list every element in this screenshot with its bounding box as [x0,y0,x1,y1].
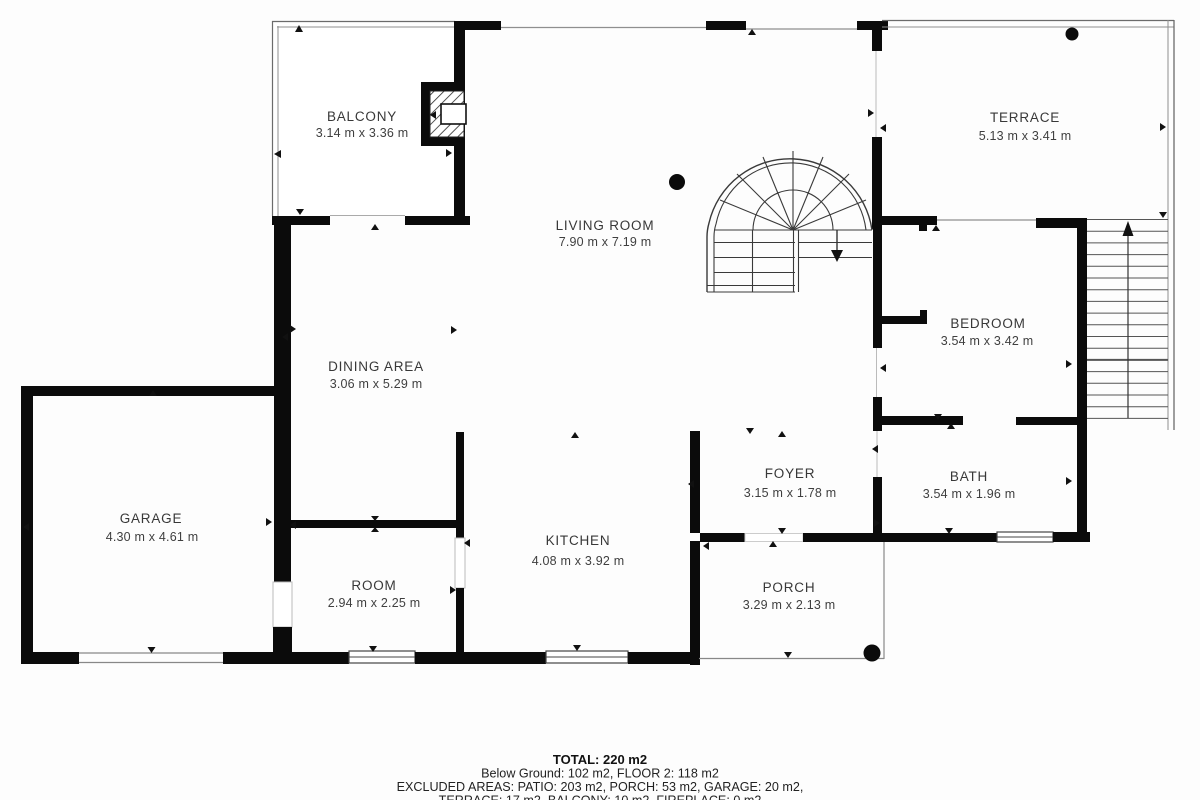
svg-text:DINING AREA: DINING AREA [328,359,424,374]
svg-text:3.06 m x 5.29 m: 3.06 m x 5.29 m [330,377,423,391]
svg-text:3.54 m x 1.96 m: 3.54 m x 1.96 m [923,487,1016,501]
svg-text:3.14 m x 3.36 m: 3.14 m x 3.36 m [316,126,409,140]
svg-text:3.29 m x 2.13 m: 3.29 m x 2.13 m [743,598,836,612]
svg-text:TOTAL: 220 m2: TOTAL: 220 m2 [553,752,647,767]
svg-text:Below Ground: 102 m2, FLOOR 2:: Below Ground: 102 m2, FLOOR 2: 118 m2 [481,767,719,781]
svg-text:3.54 m x 3.42 m: 3.54 m x 3.42 m [941,334,1034,348]
svg-text:4.30 m x 4.61 m: 4.30 m x 4.61 m [106,530,199,544]
svg-text:FOYER: FOYER [765,466,816,481]
svg-text:TERRACE: TERRACE [990,110,1060,125]
svg-text:LIVING ROOM: LIVING ROOM [556,218,655,233]
svg-text:3.15 m x 1.78 m: 3.15 m x 1.78 m [744,486,837,500]
svg-text:EXCLUDED AREAS: PATIO: 203 m2,: EXCLUDED AREAS: PATIO: 203 m2, PORCH: 53… [397,780,804,794]
svg-text:TERRACE: 17 m2, BALCONY: 10 m2: TERRACE: 17 m2, BALCONY: 10 m2, FIREPLAC… [439,794,762,800]
svg-text:ROOM: ROOM [351,578,396,593]
svg-text:7.90 m x 7.19 m: 7.90 m x 7.19 m [559,235,652,249]
svg-text:KITCHEN: KITCHEN [546,533,611,548]
svg-text:BATH: BATH [950,469,988,484]
svg-text:5.13 m x 3.41 m: 5.13 m x 3.41 m [979,129,1072,143]
svg-text:PORCH: PORCH [763,580,816,595]
svg-text:GARAGE: GARAGE [120,511,183,526]
svg-text:BALCONY: BALCONY [327,109,397,124]
svg-text:BEDROOM: BEDROOM [950,316,1025,331]
svg-text:4.08 m x 3.92 m: 4.08 m x 3.92 m [532,554,625,568]
svg-text:2.94 m x 2.25 m: 2.94 m x 2.25 m [328,596,421,610]
